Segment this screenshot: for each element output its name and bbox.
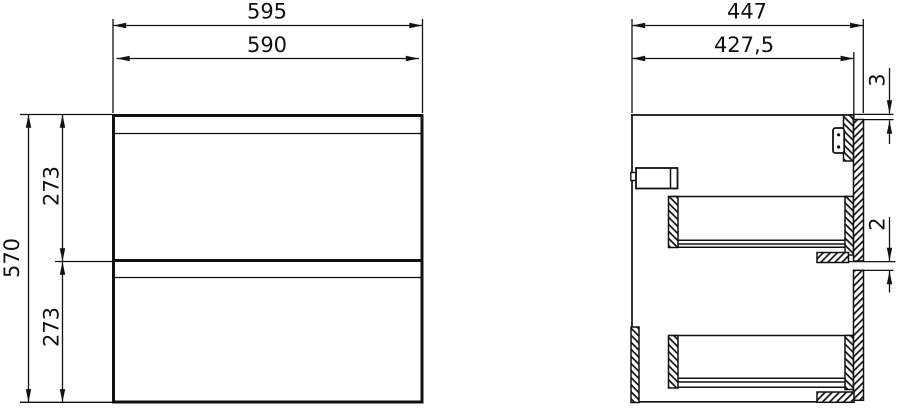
drawer-front-lower-section — [854, 270, 864, 400]
dim-label-427-5: 427,5 — [714, 33, 774, 57]
middle-rail-section — [817, 253, 849, 263]
dim-label-3: 3 — [865, 73, 889, 86]
back-panel-section — [631, 327, 639, 403]
dim-label-590: 590 — [247, 33, 287, 57]
screw-hole — [837, 145, 840, 148]
bottom-rail-section — [817, 392, 854, 402]
dim-drawer-upper: 273 — [40, 115, 64, 262]
slide-bracket — [631, 168, 678, 189]
cabinet-outline — [114, 116, 423, 403]
side-view — [631, 114, 864, 403]
drawer-box-upper — [669, 197, 854, 256]
dim-label-2: 2 — [865, 217, 889, 230]
dim-label-273-upper: 273 — [40, 166, 64, 206]
drawer-front-wall-section — [845, 197, 854, 256]
dim-label-570: 570 — [0, 238, 24, 278]
dim-width-carcass: 590 — [117, 33, 420, 59]
screw-hole — [837, 133, 840, 136]
drawer-front-wall-section — [845, 336, 854, 390]
dim-label-447: 447 — [727, 0, 767, 24]
drawer-box-lower — [669, 336, 854, 390]
bracket-body — [833, 128, 844, 153]
dim-label-595: 595 — [247, 0, 287, 24]
dim-depth-carcass: 427,5 — [632, 33, 854, 126]
drawer-front-upper-section — [854, 120, 864, 262]
dim-height-overall: 570 — [0, 115, 112, 403]
dim-label-273-lower: 273 — [40, 307, 64, 347]
bracket-body — [636, 168, 678, 189]
front-view — [112, 116, 424, 403]
dim-drawer-lower: 273 — [40, 262, 64, 403]
technical-drawing-canvas: 595 590 570 273 273 — [0, 0, 898, 409]
drawer-back-wall-section — [669, 336, 679, 389]
drawer-back-wall-section — [669, 197, 679, 248]
front-fixing-bracket — [833, 128, 844, 153]
technical-drawing: 595 590 570 273 273 — [0, 0, 898, 409]
